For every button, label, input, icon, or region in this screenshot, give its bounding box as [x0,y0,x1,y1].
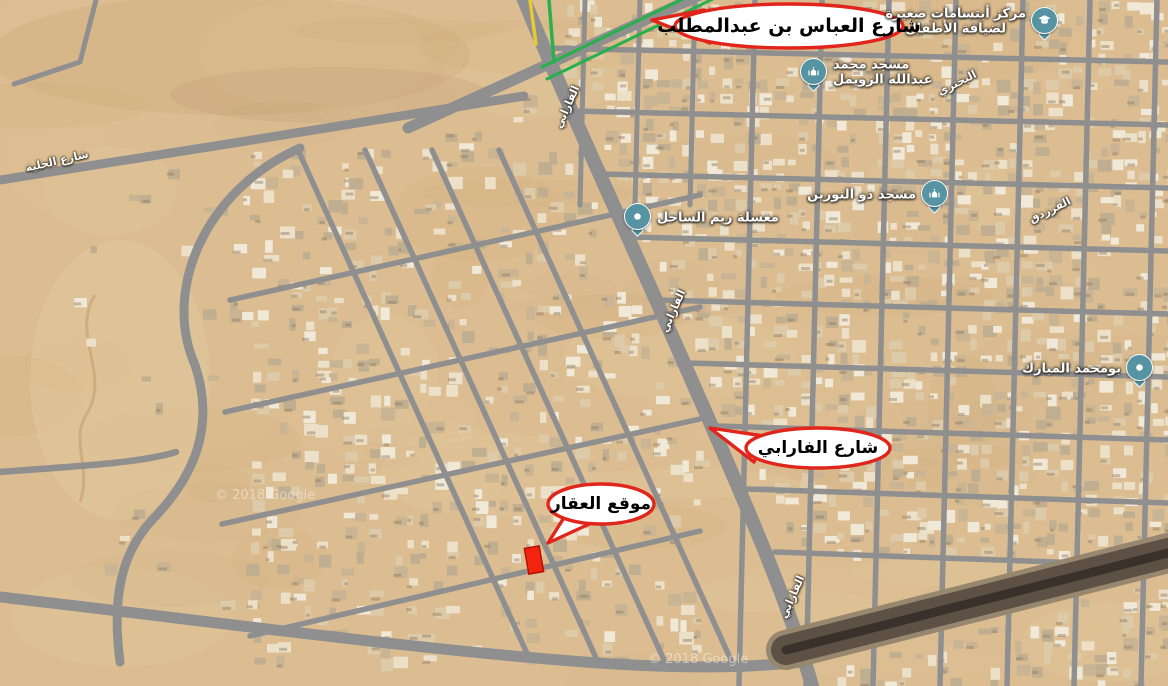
poi-label-line1: بومحمد المبارك [1022,361,1121,376]
poi-label: مسجد محمد عبدالله الزويمل [833,58,932,89]
poi-label: مسجد ذو النورين [807,187,916,202]
map-canvas[interactable]: شارع الحلية الفارابي الفارابي الفارابي ا… [0,0,1168,686]
callout-farabi-street: شارع الفارابي [758,438,878,458]
poi-label-line2: عبدالله الزويمل [833,73,932,88]
poi-label: بومحمد المبارك [1022,361,1121,376]
poi-label-line1: مسجد محمد [833,58,932,73]
mosque-icon [800,58,827,90]
poi-label-line1: مسجد ذو النورين [807,187,916,202]
poi-label-line1: مغسلة ريم الساحل [657,210,779,225]
poi-label: مغسلة ريم الساحل [657,210,779,225]
callout-abbas-street: شارع العباس بن عبدالمطلب [657,15,921,37]
place-dot-icon [1126,354,1153,386]
google-watermark-left: © 2018 Google [215,488,315,503]
mosque-icon [921,180,948,212]
place-dot-icon [624,203,651,235]
graduation-cap-icon [1031,7,1058,39]
google-watermark-bottom: © 2018 Google [648,652,748,667]
satellite-map [0,0,1168,686]
callout-property-location: موقع العقار [551,494,651,514]
